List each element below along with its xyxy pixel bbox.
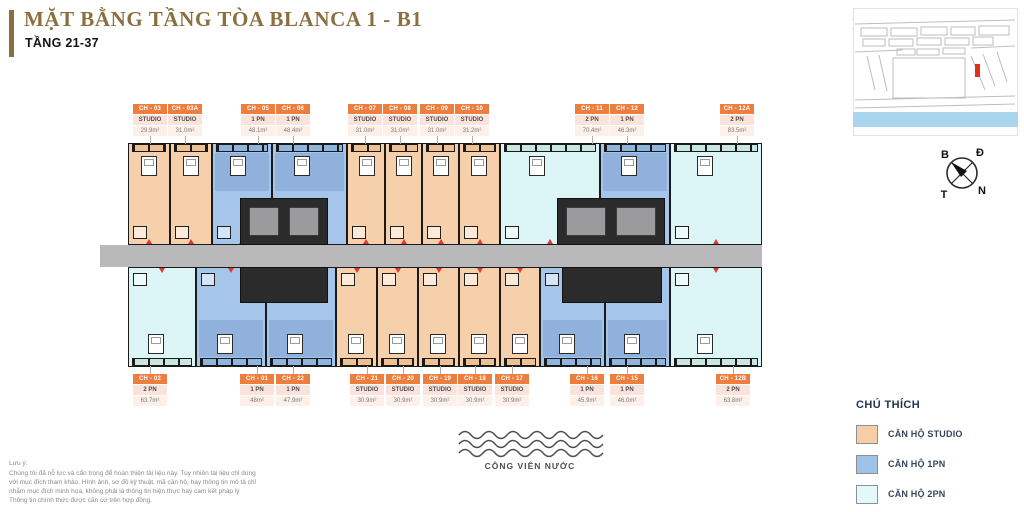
unit-type: 1 PN bbox=[610, 385, 644, 395]
unit-CH-03A bbox=[170, 143, 212, 245]
unit-type: STUDIO bbox=[350, 385, 384, 395]
balcony bbox=[132, 144, 166, 152]
label-leader-line bbox=[440, 366, 441, 374]
disclaimer: Lưu ý: Chúng tôi đã nỗ lực và cẩn trọng … bbox=[9, 459, 354, 505]
unit-area: 31.2m² bbox=[455, 126, 489, 136]
unit-CH-02 bbox=[128, 267, 196, 367]
corridor bbox=[100, 245, 762, 267]
balcony bbox=[174, 144, 208, 152]
unit-code: CH - 12B bbox=[716, 374, 750, 384]
legend-swatch bbox=[856, 485, 878, 504]
unit-CH-09 bbox=[422, 143, 459, 245]
label-leader-line bbox=[258, 136, 259, 144]
unit-label-CH-06: CH - 061 PN48.4m² bbox=[276, 104, 310, 137]
unit-CH-20 bbox=[377, 267, 418, 367]
unit-CH-10 bbox=[459, 143, 500, 245]
label-leader-line bbox=[592, 136, 593, 144]
unit-area: 47.9m² bbox=[276, 396, 310, 406]
entry-door-marker bbox=[159, 268, 165, 273]
unit-code: CH - 15 bbox=[610, 374, 644, 384]
unit-type: STUDIO bbox=[458, 385, 492, 395]
label-leader-line bbox=[400, 136, 401, 144]
unit-label-CH-08: CH - 08STUDIO31.0m² bbox=[383, 104, 417, 137]
entry-door-marker bbox=[401, 239, 407, 244]
bed-symbol bbox=[512, 334, 528, 354]
balcony bbox=[504, 144, 596, 152]
unit-code: CH - 06 bbox=[276, 104, 310, 114]
unit-label-CH-03: CH - 03STUDIO29.9m² bbox=[133, 104, 167, 137]
unit-label-CH-17: CH - 17STUDIO30.9m² bbox=[495, 374, 529, 407]
unit-CH-03 bbox=[128, 143, 170, 245]
legend-item-label: CĂN HỘ 2PN bbox=[888, 489, 946, 499]
unit-area: 29.9m² bbox=[133, 126, 167, 136]
entry-door-marker bbox=[547, 239, 553, 244]
entry-door-marker bbox=[363, 239, 369, 244]
balcony bbox=[381, 358, 414, 366]
bathroom-symbol bbox=[675, 226, 689, 239]
entry-door-marker bbox=[438, 239, 444, 244]
unit-label-CH-07: CH - 07STUDIO31.0m² bbox=[348, 104, 382, 137]
unit-type: STUDIO bbox=[348, 115, 382, 125]
unit-type: STUDIO bbox=[495, 385, 529, 395]
water-park-label: CÔNG VIÊN NƯỚC bbox=[455, 461, 605, 471]
label-leader-line bbox=[293, 136, 294, 144]
entry-door-marker bbox=[228, 268, 234, 273]
balcony bbox=[132, 358, 192, 366]
label-leader-line bbox=[472, 136, 473, 144]
unit-label-CH-20: CH - 20STUDIO30.9m² bbox=[386, 374, 420, 407]
label-leader-line bbox=[367, 366, 368, 374]
bathroom-symbol bbox=[382, 273, 396, 286]
balcony bbox=[351, 144, 381, 152]
balcony bbox=[674, 144, 758, 152]
bathroom-symbol bbox=[427, 226, 441, 239]
unit-code: CH - 07 bbox=[348, 104, 382, 114]
unit-area: 30.9m² bbox=[386, 396, 420, 406]
unit-label-CH-21: CH - 21STUDIO30.9m² bbox=[350, 374, 384, 407]
unit-type: STUDIO bbox=[133, 115, 167, 125]
unit-code: CH - 08 bbox=[383, 104, 417, 114]
balcony bbox=[200, 358, 262, 366]
balcony bbox=[463, 144, 496, 152]
entry-door-marker bbox=[354, 268, 360, 273]
legend-swatch bbox=[856, 455, 878, 474]
unit-label-CH-12: CH - 121 PN46.3m² bbox=[610, 104, 644, 137]
unit-area: 46.0m² bbox=[610, 396, 644, 406]
unit-label-CH-11: CH - 112 PN70.4m² bbox=[575, 104, 609, 137]
unit-label-CH-05: CH - 051 PN48.1m² bbox=[241, 104, 275, 137]
label-leader-line bbox=[257, 366, 258, 374]
unit-code: CH - 18 bbox=[458, 374, 492, 384]
unit-area: 31.0m² bbox=[348, 126, 382, 136]
unit-code: CH - 01 bbox=[240, 374, 274, 384]
balcony bbox=[463, 358, 496, 366]
label-leader-line bbox=[365, 136, 366, 144]
bathroom-symbol bbox=[505, 226, 519, 239]
elevator-cell bbox=[566, 207, 606, 236]
bathroom-symbol bbox=[352, 226, 366, 239]
balcony bbox=[544, 358, 601, 366]
unit-area: 31.0m² bbox=[420, 126, 454, 136]
unit-code: CH - 03 bbox=[133, 104, 167, 114]
unit-area: 30.9m² bbox=[495, 396, 529, 406]
disclaimer-title: Lưu ý: bbox=[9, 459, 354, 468]
entry-door-marker bbox=[477, 268, 483, 273]
unit-type: 2 PN bbox=[716, 385, 750, 395]
entry-door-marker bbox=[713, 268, 719, 273]
bed-symbol bbox=[389, 334, 405, 354]
bed-symbol bbox=[697, 334, 713, 354]
bed-symbol bbox=[471, 334, 487, 354]
bathroom-symbol bbox=[464, 226, 478, 239]
unit-type: STUDIO bbox=[386, 385, 420, 395]
disclaimer-line: Thông tin chính thức được căn cứ trên hợ… bbox=[9, 496, 354, 505]
service-core bbox=[557, 198, 665, 245]
unit-area: 63.8m² bbox=[716, 396, 750, 406]
unit-label-CH-12A: CH - 12A2 PN83.5m² bbox=[720, 104, 754, 137]
unit-code: CH - 16 bbox=[570, 374, 604, 384]
bathroom-symbol bbox=[201, 273, 215, 286]
entry-door-marker bbox=[436, 268, 442, 273]
balcony bbox=[609, 358, 666, 366]
bed-symbol bbox=[529, 156, 545, 176]
label-leader-line bbox=[627, 366, 628, 374]
unit-area: 30.9m² bbox=[350, 396, 384, 406]
unit-type: 1 PN bbox=[570, 385, 604, 395]
disclaimer-line: Chúng tôi đã nỗ lực và cẩn trọng để hoàn… bbox=[9, 469, 354, 478]
unit-type: 2 PN bbox=[133, 385, 167, 395]
unit-area: 48.1m² bbox=[241, 126, 275, 136]
bathroom-symbol bbox=[390, 226, 404, 239]
unit-label-CH-10: CH - 10STUDIO31.2m² bbox=[455, 104, 489, 137]
unit-code: CH - 19 bbox=[423, 374, 457, 384]
bed-symbol bbox=[348, 334, 364, 354]
balcony bbox=[604, 144, 666, 152]
disclaimer-lines: Chúng tôi đã nỗ lực và cẩn trọng để hoàn… bbox=[9, 469, 354, 505]
bed-symbol bbox=[141, 156, 157, 176]
unit-code: CH - 11 bbox=[575, 104, 609, 114]
legend-item-label: CĂN HỘ STUDIO bbox=[888, 429, 963, 439]
label-leader-line bbox=[150, 366, 151, 374]
unit-label-CH-15: CH - 151 PN46.0m² bbox=[610, 374, 644, 407]
elevator-cell bbox=[616, 207, 656, 236]
balcony bbox=[389, 144, 418, 152]
bed-symbol bbox=[230, 156, 246, 176]
unit-area: 48.4m² bbox=[276, 126, 310, 136]
unit-CH-21 bbox=[336, 267, 377, 367]
unit-label-CH-01: CH - 011 PN48m² bbox=[240, 374, 274, 407]
unit-type: 1 PN bbox=[276, 115, 310, 125]
unit-area: 48m² bbox=[240, 396, 274, 406]
unit-CH-07 bbox=[347, 143, 385, 245]
bed-symbol bbox=[148, 334, 164, 354]
unit-type: 1 PN bbox=[276, 385, 310, 395]
entry-door-marker bbox=[395, 268, 401, 273]
unit-area: 30.9m² bbox=[423, 396, 457, 406]
unit-CH-08 bbox=[385, 143, 422, 245]
bathroom-symbol bbox=[675, 273, 689, 286]
bed-symbol bbox=[471, 156, 487, 176]
unit-CH-12A bbox=[670, 143, 762, 245]
unit-label-CH-16: CH - 161 PN45.9m² bbox=[570, 374, 604, 407]
unit-type: 2 PN bbox=[720, 115, 754, 125]
unit-type: STUDIO bbox=[420, 115, 454, 125]
unit-code: CH - 12 bbox=[610, 104, 644, 114]
unit-area: 45.9m² bbox=[570, 396, 604, 406]
bed-symbol bbox=[217, 334, 233, 354]
bed-symbol bbox=[697, 156, 713, 176]
label-leader-line bbox=[512, 366, 513, 374]
unit-type: STUDIO bbox=[423, 385, 457, 395]
entry-door-marker bbox=[188, 239, 194, 244]
bed-symbol bbox=[183, 156, 199, 176]
unit-code: CH - 10 bbox=[455, 104, 489, 114]
unit-area: 31.0m² bbox=[383, 126, 417, 136]
label-leader-line bbox=[475, 366, 476, 374]
unit-label-CH-12B: CH - 12B2 PN63.8m² bbox=[716, 374, 750, 407]
unit-type: 1 PN bbox=[241, 115, 275, 125]
bed-symbol bbox=[621, 156, 637, 176]
legend-title: CHÚ THÍCH bbox=[856, 399, 920, 411]
label-leader-line bbox=[733, 366, 734, 374]
balcony bbox=[674, 358, 758, 366]
balcony bbox=[426, 144, 455, 152]
unit-label-CH-02: CH - 022 PN63.7m² bbox=[133, 374, 167, 407]
bathroom-symbol bbox=[133, 273, 147, 286]
unit-code: CH - 20 bbox=[386, 374, 420, 384]
unit-code: CH - 21 bbox=[350, 374, 384, 384]
unit-CH-12B bbox=[670, 267, 762, 367]
label-leader-line bbox=[150, 136, 151, 144]
bathroom-symbol bbox=[423, 273, 437, 286]
bed-symbol bbox=[359, 156, 375, 176]
unit-label-CH-19: CH - 19STUDIO30.9m² bbox=[423, 374, 457, 407]
service-core bbox=[240, 198, 328, 245]
unit-label-CH-18: CH - 18STUDIO30.9m² bbox=[458, 374, 492, 407]
label-leader-line bbox=[403, 366, 404, 374]
bed-symbol bbox=[287, 334, 303, 354]
balcony bbox=[340, 358, 373, 366]
unit-area: 46.3m² bbox=[610, 126, 644, 136]
label-leader-line bbox=[185, 136, 186, 144]
unit-code: CH - 05 bbox=[241, 104, 275, 114]
label-leader-line bbox=[737, 136, 738, 144]
legend-item-3: CĂN HỘ 2PN bbox=[856, 484, 946, 504]
unit-area: 30.9m² bbox=[458, 396, 492, 406]
bed-symbol bbox=[624, 334, 640, 354]
legend-item-2: CĂN HỘ 1PN bbox=[856, 454, 946, 474]
entry-door-marker bbox=[517, 268, 523, 273]
entry-door-marker bbox=[477, 239, 483, 244]
elevator-cell bbox=[249, 207, 279, 236]
unit-area: 70.4m² bbox=[575, 126, 609, 136]
unit-code: CH - 12A bbox=[720, 104, 754, 114]
unit-label-CH-22: CH - 221 PN47.9m² bbox=[276, 374, 310, 407]
unit-type: 1 PN bbox=[240, 385, 274, 395]
unit-type: STUDIO bbox=[168, 115, 202, 125]
legend-item-1: CĂN HỘ STUDIO bbox=[856, 424, 963, 444]
entry-door-marker bbox=[713, 239, 719, 244]
bed-symbol bbox=[396, 156, 412, 176]
label-leader-line bbox=[293, 366, 294, 374]
unit-area: 83.5m² bbox=[720, 126, 754, 136]
unit-code: CH - 03A bbox=[168, 104, 202, 114]
legend-item-label: CĂN HỘ 1PN bbox=[888, 459, 946, 469]
bathroom-symbol bbox=[505, 273, 519, 286]
label-leader-line bbox=[437, 136, 438, 144]
water-park-waves bbox=[457, 430, 605, 460]
bed-symbol bbox=[559, 334, 575, 354]
unit-CH-18 bbox=[459, 267, 500, 367]
legend-swatch bbox=[856, 425, 878, 444]
bathroom-symbol bbox=[545, 273, 559, 286]
unit-code: CH - 02 bbox=[133, 374, 167, 384]
unit-label-CH-03A: CH - 03ASTUDIO31.0m² bbox=[168, 104, 202, 137]
entry-door-marker bbox=[146, 239, 152, 244]
bed-symbol bbox=[430, 334, 446, 354]
unit-CH-17 bbox=[500, 267, 540, 367]
unit-code: CH - 17 bbox=[495, 374, 529, 384]
bed-symbol bbox=[433, 156, 449, 176]
bathroom-symbol bbox=[217, 226, 231, 239]
unit-CH-19 bbox=[418, 267, 459, 367]
disclaimer-line: nhằm mục đích minh họa, không phải là th… bbox=[9, 487, 354, 496]
unit-area: 63.7m² bbox=[133, 396, 167, 406]
service-core bbox=[240, 267, 328, 303]
bathroom-symbol bbox=[175, 226, 189, 239]
unit-type: STUDIO bbox=[383, 115, 417, 125]
disclaimer-line: với mục đích tham khảo. Hình ảnh, sơ đồ … bbox=[9, 478, 354, 487]
unit-area: 31.0m² bbox=[168, 126, 202, 136]
unit-code: CH - 22 bbox=[276, 374, 310, 384]
service-core bbox=[562, 267, 662, 303]
bathroom-symbol bbox=[133, 226, 147, 239]
bathroom-symbol bbox=[341, 273, 355, 286]
unit-code: CH - 09 bbox=[420, 104, 454, 114]
unit-label-CH-09: CH - 09STUDIO31.0m² bbox=[420, 104, 454, 137]
balcony bbox=[216, 144, 268, 152]
unit-type: STUDIO bbox=[455, 115, 489, 125]
unit-type: 1 PN bbox=[610, 115, 644, 125]
elevator-cell bbox=[289, 207, 319, 236]
balcony bbox=[504, 358, 536, 366]
balcony bbox=[270, 358, 332, 366]
balcony bbox=[422, 358, 455, 366]
label-leader-line bbox=[627, 136, 628, 144]
unit-type: 2 PN bbox=[575, 115, 609, 125]
label-leader-line bbox=[587, 366, 588, 374]
bathroom-symbol bbox=[464, 273, 478, 286]
bed-symbol bbox=[294, 156, 310, 176]
balcony bbox=[276, 144, 343, 152]
